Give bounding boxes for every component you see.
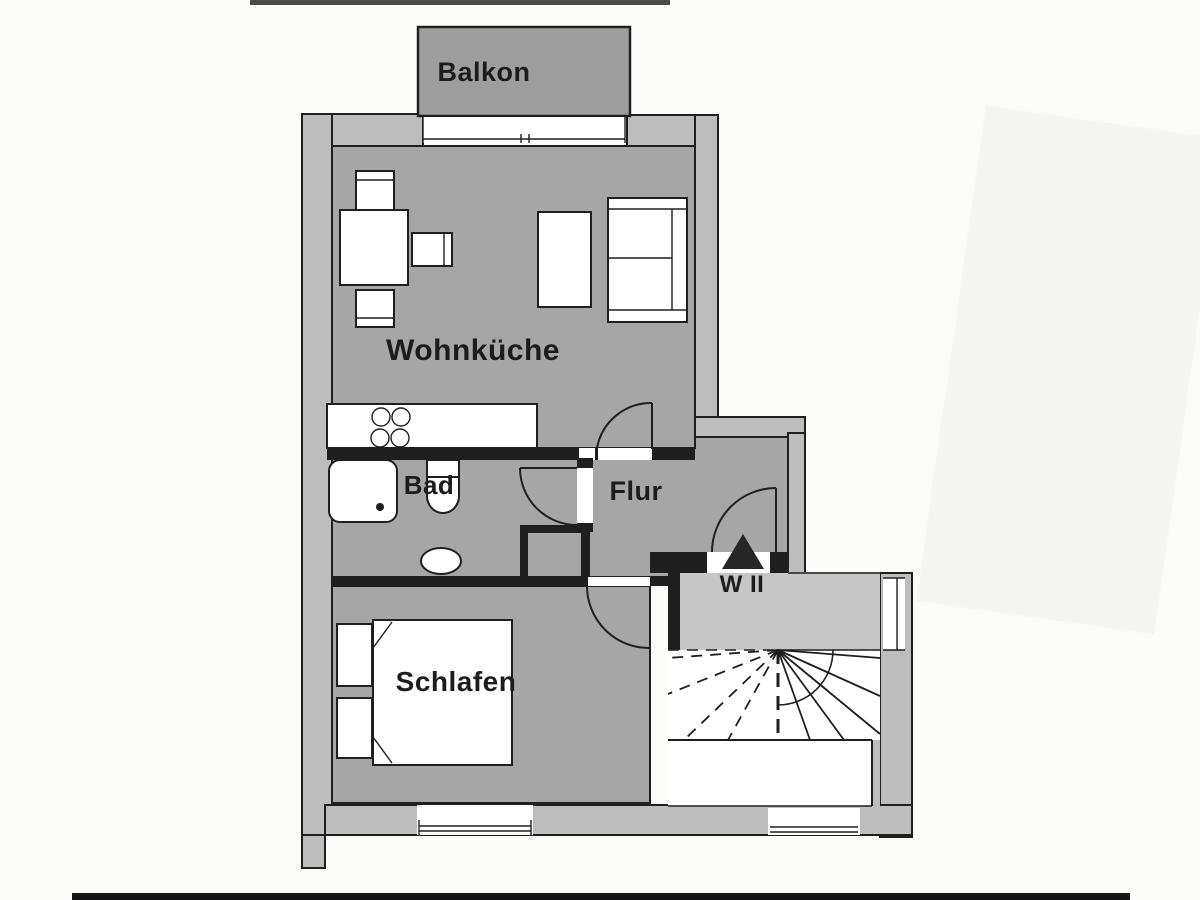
label-balkon: Balkon xyxy=(437,57,530,87)
wall-schlafen-top-a xyxy=(332,577,588,586)
label-unit: W II xyxy=(720,571,765,598)
stair-landing-lower xyxy=(668,740,872,806)
wall-bad-flur-a xyxy=(577,458,593,468)
stair-landing-upper xyxy=(680,573,880,650)
wall-flur-right xyxy=(788,433,805,573)
scan-bottom-bar xyxy=(72,893,1130,900)
stair-treads-area xyxy=(668,650,880,740)
door-opening-kitchen xyxy=(598,448,652,460)
window-stair-bottom xyxy=(768,808,860,835)
wall-top-left xyxy=(332,114,423,146)
floorplan-page: Balkon Wohnküche Bad Flur Schlafen W II xyxy=(0,0,1200,900)
wall-flur-stairs xyxy=(668,572,680,650)
floorplan-svg: Balkon Wohnküche Bad Flur Schlafen W II xyxy=(0,0,1200,900)
chair-right xyxy=(412,233,452,266)
wall-entrance-a xyxy=(650,552,707,573)
wall-left-foot xyxy=(302,835,325,868)
wall-right-living xyxy=(695,115,718,437)
shower xyxy=(329,460,397,522)
chair-bottom xyxy=(356,290,394,327)
wall-left xyxy=(302,114,332,835)
nightstand xyxy=(337,624,372,686)
label-wohnkueche: Wohnküche xyxy=(386,334,560,367)
label-schlafen: Schlafen xyxy=(396,666,517,697)
window-balcony xyxy=(423,117,625,143)
wall-niche-right xyxy=(582,531,590,577)
wall-niche-top xyxy=(520,525,590,533)
chair-top xyxy=(356,171,394,210)
side-table xyxy=(538,212,591,307)
door-opening-bad xyxy=(577,468,593,523)
wall-schlafen-top-b xyxy=(650,577,668,586)
dining-table xyxy=(340,210,408,285)
sofa xyxy=(608,198,687,322)
scan-top-bar xyxy=(250,0,670,5)
window-schlafen xyxy=(417,805,533,835)
nightstand xyxy=(337,698,372,758)
scan-smudge xyxy=(916,106,1200,635)
wall-entrance-b xyxy=(770,552,788,573)
label-flur: Flur xyxy=(610,476,663,506)
door-opening-schlafen xyxy=(588,577,650,586)
window-stair-right xyxy=(883,578,905,650)
kitchen-counter xyxy=(327,404,537,448)
label-bad: Bad xyxy=(404,470,455,500)
sink xyxy=(421,548,461,574)
